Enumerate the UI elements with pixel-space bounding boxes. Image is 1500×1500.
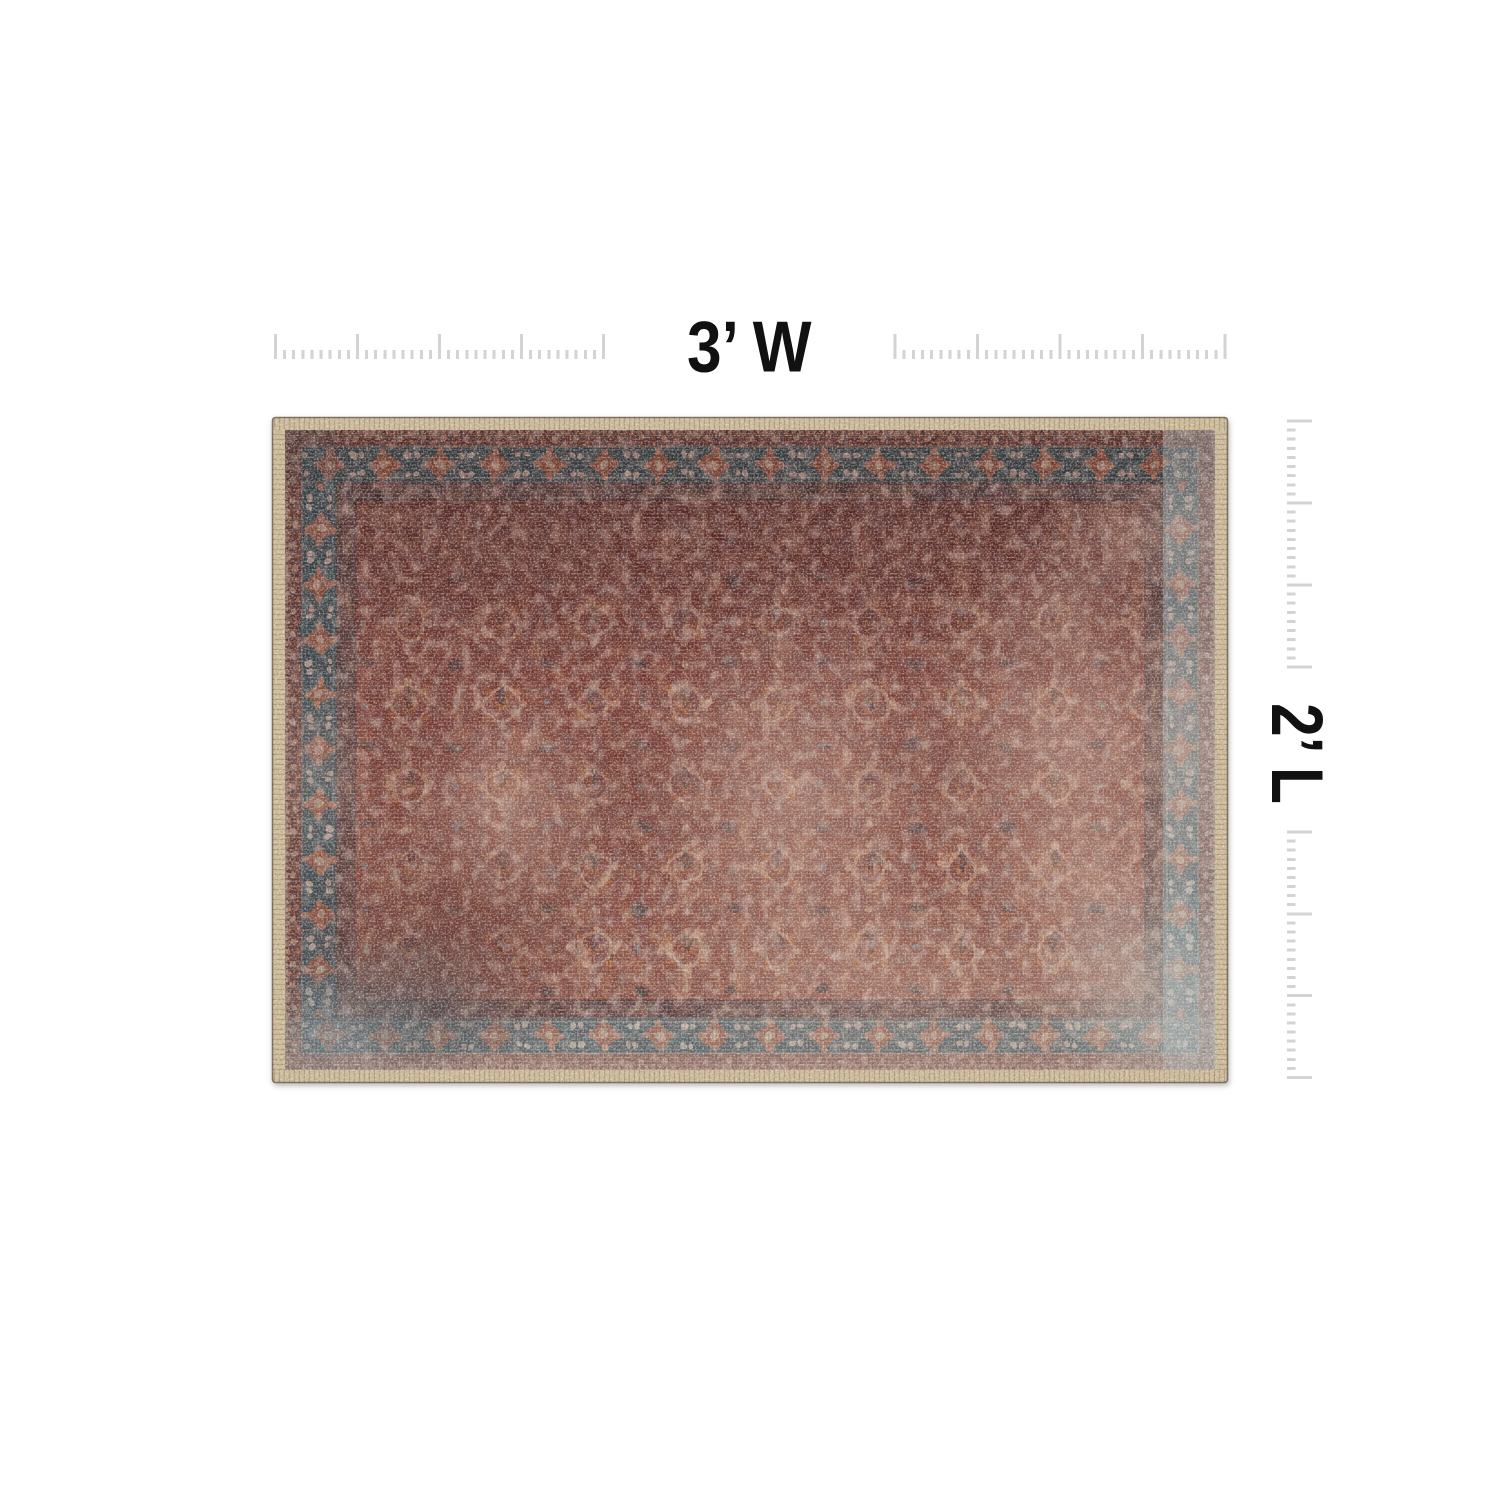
svg-text:3’ W: 3’ W — [687, 308, 812, 388]
svg-text:2’ L: 2’ L — [1256, 703, 1337, 804]
